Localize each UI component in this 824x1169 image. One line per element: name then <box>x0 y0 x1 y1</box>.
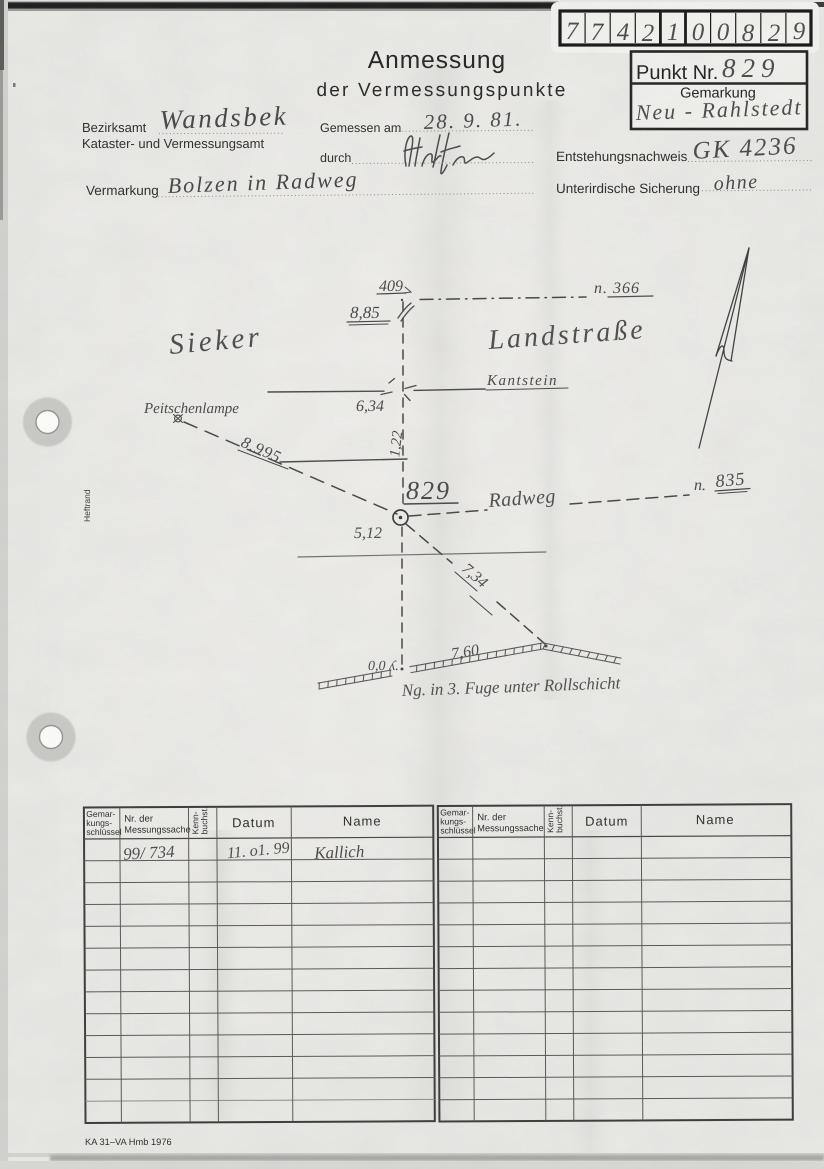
svg-text:Gemessen am: Gemessen am <box>320 121 401 135</box>
svg-text:Punkt Nr.: Punkt Nr. <box>636 62 718 84</box>
svg-text:7: 7 <box>591 19 605 46</box>
svg-text:409: 409 <box>379 278 403 295</box>
svg-text:Nr. der: Nr. der <box>124 814 154 825</box>
svg-text:Nr. der: Nr. der <box>477 812 507 823</box>
svg-text:Kallich: Kallich <box>313 842 365 863</box>
svg-text:Wandsbek: Wandsbek <box>159 101 288 135</box>
svg-text:4: 4 <box>617 19 630 46</box>
svg-text:Name: Name <box>696 812 735 827</box>
svg-text:2: 2 <box>768 20 781 47</box>
svg-text:KA 31–VA Hmb 1976: KA 31–VA Hmb 1976 <box>85 1137 172 1147</box>
svg-text:Unterirdische Sicherung: Unterirdische Sicherung <box>556 181 700 196</box>
svg-text:Kantstein: Kantstein <box>486 373 558 389</box>
svg-text:schlüssel: schlüssel <box>86 827 121 837</box>
svg-text:1,22: 1,22 <box>387 429 406 458</box>
svg-text:829: 829 <box>406 476 451 505</box>
svg-text:Vermarkung: Vermarkung <box>86 183 159 198</box>
svg-text:0: 0 <box>717 19 730 46</box>
svg-text:durch: durch <box>320 151 351 165</box>
svg-text:9: 9 <box>793 18 806 45</box>
svg-text:Entstehungsnachweis: Entstehungsnachweis <box>556 149 688 164</box>
svg-text:buchst.: buchst. <box>554 805 564 833</box>
svg-text:0: 0 <box>692 19 705 46</box>
svg-text:7: 7 <box>566 18 580 45</box>
svg-text:6,34: 6,34 <box>356 398 384 415</box>
svg-text:ohne: ohne <box>713 171 759 195</box>
svg-text:5,12: 5,12 <box>354 525 382 542</box>
svg-text:Messungssache: Messungssache <box>124 824 190 834</box>
svg-text:n.: n. <box>694 477 706 494</box>
svg-text:Name: Name <box>343 813 382 828</box>
svg-text:Datum: Datum <box>232 815 275 830</box>
svg-text:Kataster- und Vermessungsamt: Kataster- und Vermessungsamt <box>82 136 264 151</box>
svg-text:Messungssache: Messungssache <box>477 823 543 833</box>
svg-text:Anmessung: Anmessung <box>368 47 506 74</box>
svg-text:schlüssel: schlüssel <box>440 825 475 835</box>
svg-text:2: 2 <box>642 20 655 47</box>
svg-text:buchst.: buchst. <box>199 807 209 835</box>
svg-text:829: 829 <box>722 53 781 83</box>
svg-text:n. 366: n. 366 <box>594 280 640 297</box>
svg-text:8: 8 <box>742 20 755 47</box>
svg-text:Heftrand: Heftrand <box>82 489 92 522</box>
svg-text:Peitschenlampe: Peitschenlampe <box>143 401 239 417</box>
svg-text:28. 9. 81.: 28. 9. 81. <box>423 107 523 134</box>
svg-text:Bezirksamt: Bezirksamt <box>82 120 147 135</box>
svg-text:99/ 734: 99/ 734 <box>123 842 176 864</box>
svg-text:1: 1 <box>667 19 680 46</box>
svg-text:der Vermessungspunkte: der Vermessungspunkte <box>316 80 567 101</box>
svg-text:8,85: 8,85 <box>350 303 380 322</box>
svg-text:835: 835 <box>715 468 747 491</box>
svg-text:GK 4236: GK 4236 <box>692 132 798 164</box>
svg-text:Datum: Datum <box>585 814 628 829</box>
